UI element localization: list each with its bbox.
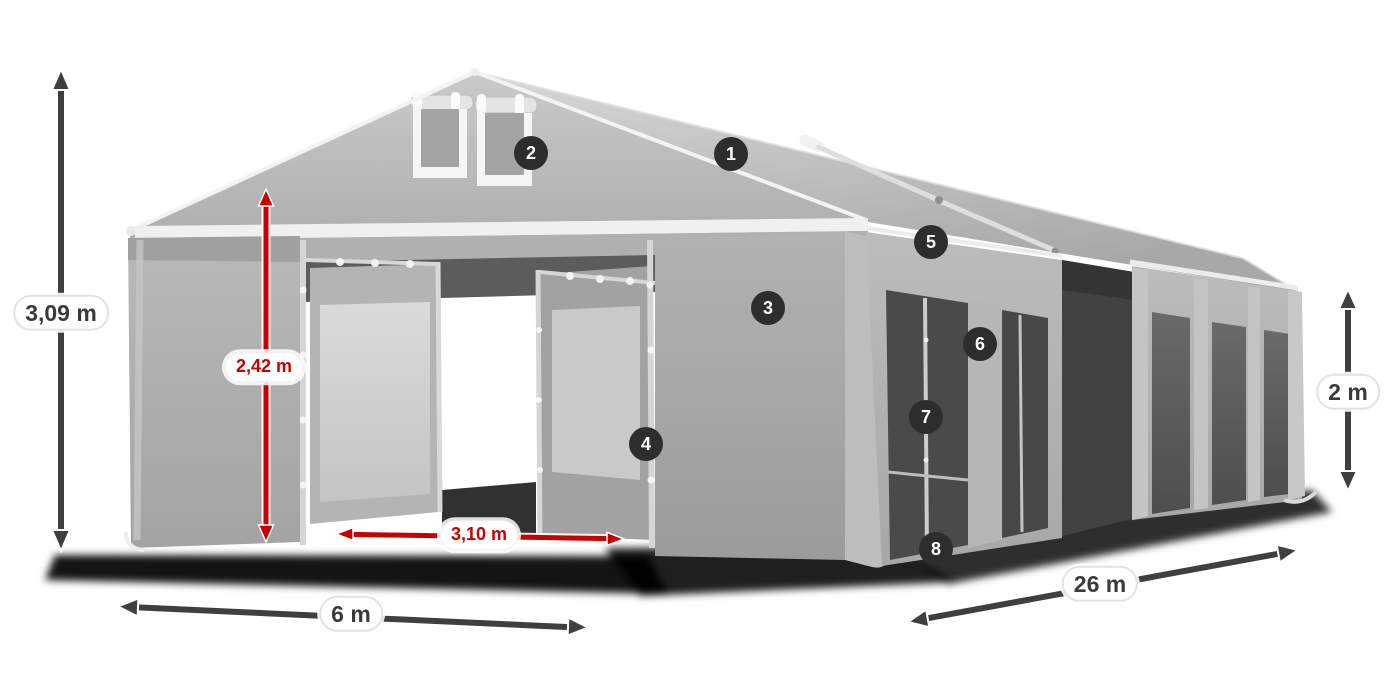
front-wall	[126, 218, 888, 568]
tent-illustration	[0, 0, 1400, 700]
dimension-label-entrance-height: 2,42 m	[225, 352, 303, 382]
bungee-clip	[336, 258, 344, 266]
vent-frame-left	[477, 111, 485, 179]
vent-mesh	[421, 109, 459, 169]
pole-clamp	[924, 338, 929, 343]
side-module-2	[1130, 262, 1316, 520]
side-module-1	[866, 228, 1062, 566]
bungee-clip	[566, 272, 574, 280]
pole-clamp	[536, 327, 542, 333]
vent-frame-right	[459, 109, 467, 177]
pole-clamp	[648, 347, 655, 354]
side-window-3	[1264, 330, 1290, 497]
corner-roll	[137, 240, 140, 540]
panel-post	[1248, 286, 1260, 502]
dimension-label-side-height: 2 m	[1316, 374, 1380, 410]
callout-badge-4[interactable]: 4	[629, 427, 663, 461]
pole-joint	[935, 196, 943, 204]
dimension-label-total-height: 3,09 m	[13, 295, 109, 331]
front-wall-right	[655, 232, 888, 568]
bungee-clip	[371, 259, 379, 267]
panel-post	[1194, 278, 1208, 510]
callout-badge-6[interactable]: 6	[963, 327, 997, 361]
open-bay-interior	[1062, 260, 1134, 536]
front-wall-left	[126, 236, 300, 550]
pole-clamp	[300, 482, 307, 489]
front-door-right-leaf	[536, 266, 655, 540]
side-window-1	[1152, 312, 1190, 514]
side-window-2	[1212, 322, 1246, 505]
vent-frame-left	[413, 107, 421, 173]
callout-badge-3[interactable]: 3	[751, 291, 785, 325]
callout-badge-5[interactable]: 5	[914, 225, 948, 259]
vent-window-1	[411, 92, 473, 178]
vent-frame-bottom	[413, 167, 467, 178]
vent-frame-bottom	[477, 175, 532, 186]
pole-clamp	[300, 287, 307, 294]
pole-clamp	[536, 397, 542, 403]
peak-cap	[471, 68, 479, 76]
panel-post	[1132, 268, 1148, 520]
wall-panel	[128, 236, 300, 548]
callout-badge-8[interactable]: 8	[919, 532, 953, 566]
pole-clamp	[300, 352, 307, 359]
callout-badge-1[interactable]: 1	[714, 137, 748, 171]
door-post-middle	[538, 270, 540, 540]
eave-cap-left	[126, 226, 136, 236]
door-leaf-window	[320, 302, 430, 502]
door-leaf-window	[552, 306, 640, 480]
vent-roller-ring	[515, 94, 524, 116]
wall-eave-band	[128, 236, 300, 262]
dimension-label-entrance-width: 3,10 m	[440, 520, 518, 550]
door-leaf-pole	[438, 262, 440, 512]
pole-clamp	[924, 458, 929, 463]
mesh-window-2	[1002, 310, 1048, 538]
dimension-label-side-length: 26 m	[1062, 566, 1138, 602]
pole-clamp	[647, 282, 654, 289]
pole-clamp	[648, 477, 655, 484]
side-open-bay	[1062, 260, 1134, 536]
wall-panel	[655, 232, 845, 560]
tent-diagram: 3,09 m 6 m 26 m 2 m 2,42 m 3,10 m 1 2 3 …	[0, 0, 1400, 700]
bungee-clip	[626, 277, 634, 285]
pole-clamp	[300, 417, 307, 424]
dimension-label-front-width: 6 m	[319, 596, 383, 632]
front-door-left-leaf	[306, 258, 440, 524]
callout-badge-2[interactable]: 2	[514, 136, 548, 170]
corner-post-back	[1288, 290, 1305, 500]
inner-leg-pole	[1020, 315, 1022, 532]
callout-badge-7[interactable]: 7	[909, 400, 943, 434]
bungee-clip	[406, 260, 414, 268]
pole-clamp	[537, 467, 543, 473]
bungee-clip	[596, 275, 604, 283]
